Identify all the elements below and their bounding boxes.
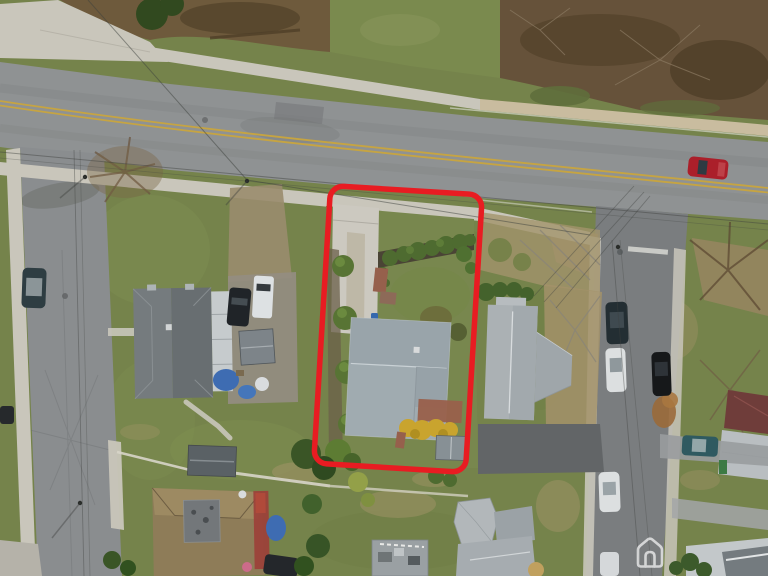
roof-vent xyxy=(185,284,194,290)
subject-property xyxy=(325,204,478,471)
parked-car-white-partial xyxy=(600,552,619,576)
flat-roof-structure xyxy=(372,540,428,576)
manhole xyxy=(62,293,68,299)
yard-clutter xyxy=(255,377,269,391)
chimney xyxy=(413,347,419,353)
blue-tarp xyxy=(238,385,256,399)
manhole xyxy=(202,117,208,123)
backyard-shed xyxy=(239,329,275,365)
blue-tarp xyxy=(213,369,239,391)
manhole xyxy=(617,249,623,255)
right-neighbor-property xyxy=(477,212,604,474)
blue-tarp xyxy=(266,515,286,541)
parked-car-black xyxy=(226,287,251,327)
brick-patio xyxy=(417,399,462,423)
parked-car-edge xyxy=(0,406,14,424)
dark-shed xyxy=(187,445,236,477)
driveway-apron xyxy=(0,540,42,576)
rear-driveway xyxy=(478,424,604,474)
gravel-driveway xyxy=(228,184,292,282)
aerial-photo-canvas xyxy=(0,0,768,576)
parked-car-teal-left-street xyxy=(21,268,46,309)
green-bin xyxy=(719,460,727,474)
moving-car-red xyxy=(687,156,729,180)
parked-van-white xyxy=(252,276,274,319)
brick-steps xyxy=(373,267,388,292)
pink-item xyxy=(242,562,252,572)
roof-deck xyxy=(183,500,220,543)
chimney xyxy=(166,324,172,330)
aerial-photo xyxy=(0,0,768,576)
garden-shed xyxy=(436,435,467,460)
brown-roof-house xyxy=(152,486,270,576)
yard-clutter xyxy=(236,370,244,376)
roof-vent xyxy=(147,284,156,290)
front-walk xyxy=(108,328,134,336)
brick-landing xyxy=(379,291,396,305)
